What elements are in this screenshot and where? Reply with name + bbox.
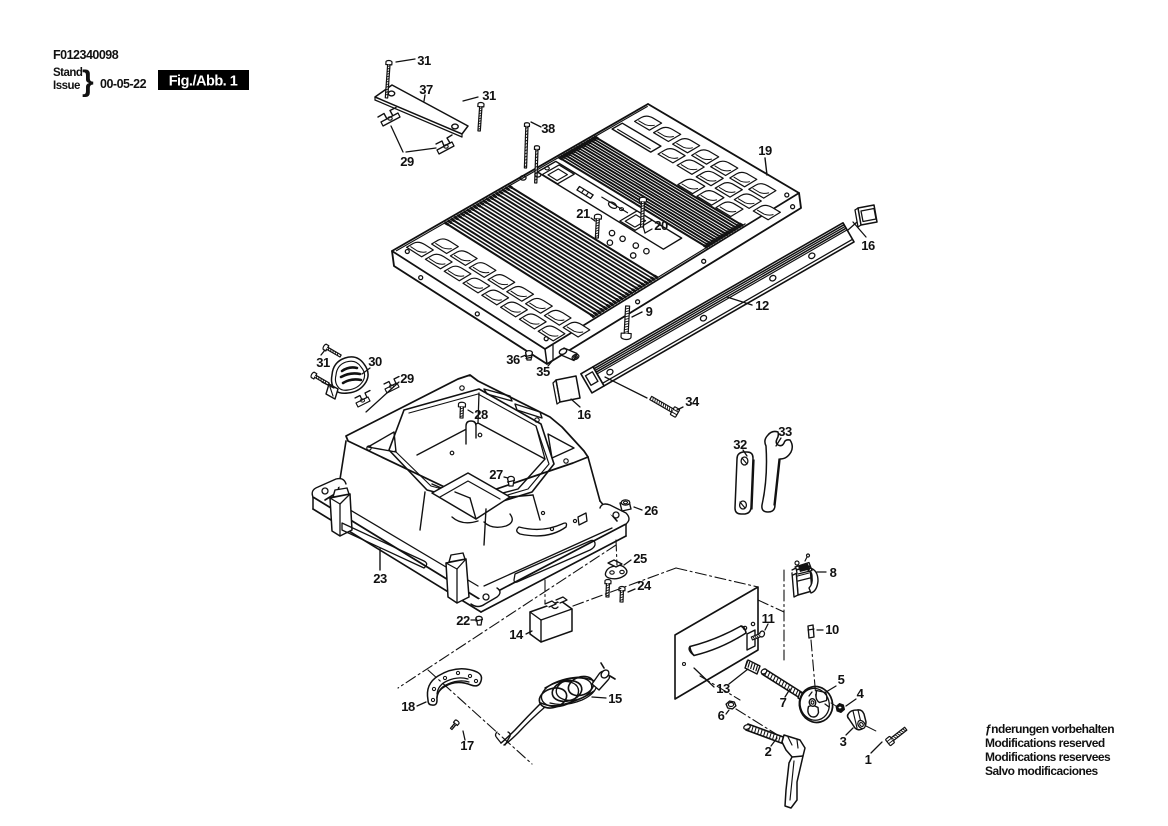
svg-text:28: 28 — [474, 407, 488, 422]
svg-text:8: 8 — [830, 565, 837, 580]
svg-text:32: 32 — [733, 437, 747, 452]
svg-text:7: 7 — [780, 695, 787, 710]
svg-text:34: 34 — [685, 394, 700, 409]
svg-text:Salvo modificaciones: Salvo modificaciones — [985, 764, 1099, 778]
svg-text:23: 23 — [373, 571, 387, 586]
svg-text:21: 21 — [576, 206, 590, 221]
svg-text:31: 31 — [316, 355, 330, 370]
svg-text:25: 25 — [633, 551, 647, 566]
svg-text:16: 16 — [577, 407, 591, 422]
svg-text:F012340098: F012340098 — [53, 48, 119, 62]
svg-text:31: 31 — [482, 88, 496, 103]
svg-text:10: 10 — [825, 622, 839, 637]
svg-text:00-05-22: 00-05-22 — [100, 77, 147, 91]
svg-text:Issue: Issue — [53, 80, 80, 92]
svg-text:14: 14 — [509, 627, 524, 642]
svg-text:26: 26 — [644, 503, 658, 518]
svg-text:29: 29 — [400, 371, 414, 386]
svg-text:36: 36 — [506, 352, 520, 367]
svg-text:3: 3 — [840, 734, 847, 749]
svg-text:33: 33 — [778, 424, 792, 439]
svg-text:5: 5 — [838, 672, 845, 687]
svg-text:Stand: Stand — [53, 67, 83, 79]
svg-text:24: 24 — [637, 578, 652, 593]
svg-text:12: 12 — [755, 298, 769, 313]
svg-text:}: } — [82, 65, 94, 98]
svg-text:ƒnderungen vorbehalten: ƒnderungen vorbehalten — [985, 722, 1114, 736]
svg-text:27: 27 — [489, 467, 503, 482]
svg-text:31: 31 — [417, 53, 431, 68]
svg-text:20: 20 — [654, 218, 668, 233]
svg-text:15: 15 — [608, 691, 622, 706]
svg-text:37: 37 — [419, 82, 433, 97]
svg-text:9: 9 — [646, 304, 653, 319]
svg-text:Modifications reserved: Modifications reserved — [985, 736, 1105, 750]
svg-text:19: 19 — [758, 143, 772, 158]
svg-text:38: 38 — [541, 121, 555, 136]
svg-text:13: 13 — [716, 681, 730, 696]
svg-text:16: 16 — [861, 238, 875, 253]
svg-text:6: 6 — [718, 708, 725, 723]
svg-text:Modifications reservees: Modifications reservees — [985, 750, 1111, 764]
svg-text:30: 30 — [368, 354, 382, 369]
svg-text:22: 22 — [456, 613, 470, 628]
svg-text:17: 17 — [460, 738, 474, 753]
svg-text:1: 1 — [865, 752, 872, 767]
svg-text:Fig./Abb. 1: Fig./Abb. 1 — [169, 74, 238, 90]
svg-text:18: 18 — [401, 699, 415, 714]
svg-text:29: 29 — [400, 154, 414, 169]
